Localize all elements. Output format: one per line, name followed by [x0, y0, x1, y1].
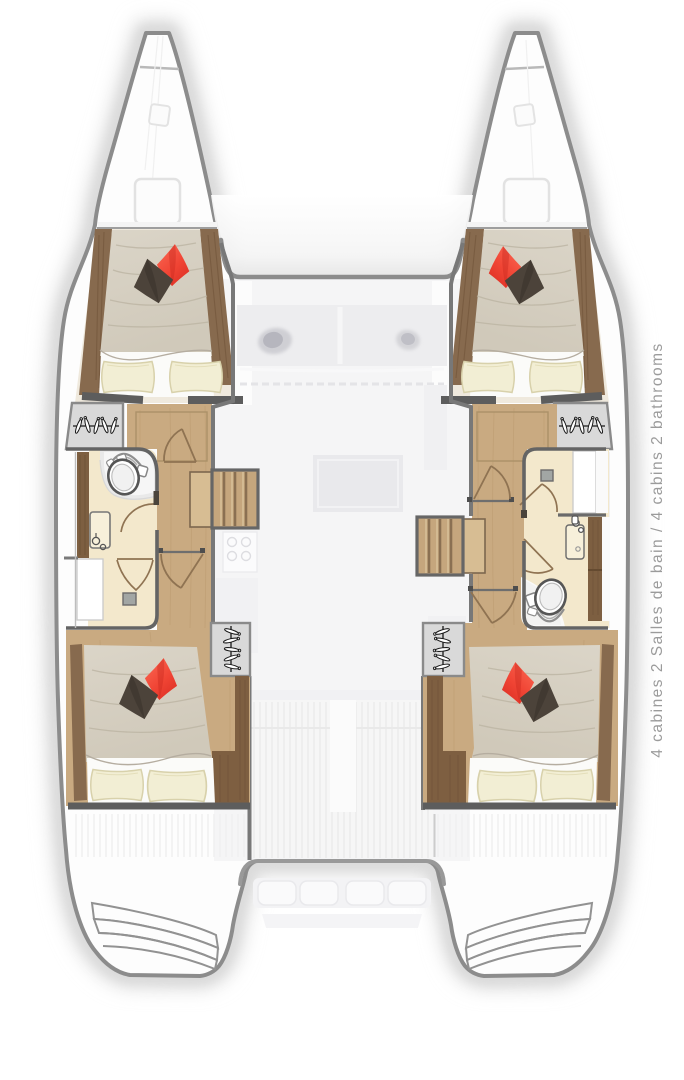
svg-text:4 cabines 2 Salles de bain / 4: 4 cabines 2 Salles de bain / 4 cabins 2 … [649, 342, 666, 758]
